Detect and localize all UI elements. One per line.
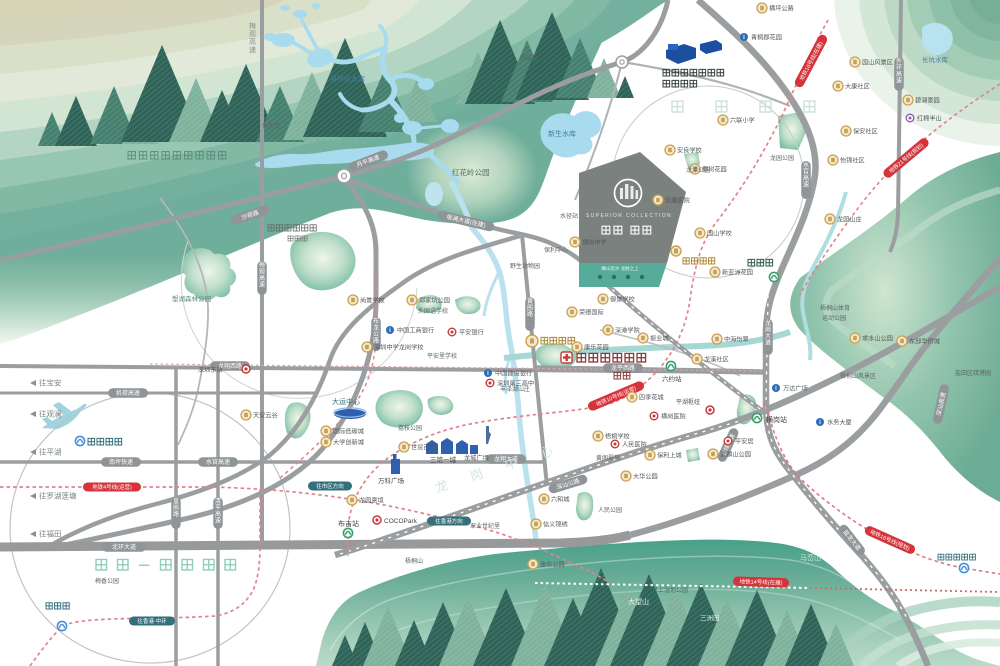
svg-text:黄: 黄 [527,297,533,305]
svg-text:道: 道 [765,339,771,347]
svg-text:往宝安: 往宝安 [39,378,62,388]
svg-text:外: 外 [896,57,902,65]
svg-text:安康医院: 安康医院 [665,197,690,205]
svg-text:大望山: 大望山 [628,597,649,606]
svg-text:恩上湿地公园: 恩上湿地公园 [652,586,688,594]
svg-text:往罗湖莲塘: 往罗湖莲塘 [39,491,77,501]
svg-text:保利中心: 保利中心 [544,246,568,254]
svg-text:路: 路 [527,310,533,318]
svg-text:六约站: 六约站 [662,374,682,383]
svg-text:龙: 龙 [373,324,379,332]
svg-text:求水山公园: 求水山公园 [862,335,893,343]
svg-text:尚景学校: 尚景学校 [360,297,385,305]
svg-text:金众公园: 金众公园 [540,561,565,569]
svg-text:荣德国际: 荣德国际 [579,309,604,317]
svg-text:中海怡翠: 中海怡翠 [724,336,749,344]
svg-text:观: 观 [259,269,265,276]
svg-text:高: 高 [803,174,809,182]
svg-text:碧湖豪园: 碧湖豪园 [915,97,940,105]
svg-text:布: 布 [373,317,379,325]
svg-text:中国建设银行: 中国建设银行 [495,370,532,378]
svg-text:盐田区疏港园: 盐田区疏港园 [955,369,991,377]
svg-text:三馆一城: 三馆一城 [430,455,457,464]
svg-text:往香港方向: 往香港方向 [435,517,463,525]
svg-text:公: 公 [373,331,379,338]
svg-text:黄阁翠苑: 黄阁翠苑 [596,454,620,462]
svg-text:龙: 龙 [765,319,771,327]
svg-text:清: 清 [215,497,221,505]
svg-text:岗: 岗 [173,505,179,512]
svg-text:御景学校: 御景学校 [610,296,635,304]
svg-text:平安居: 平安居 [735,438,754,446]
svg-text:梧桐山风景区: 梧桐山风景区 [840,372,876,380]
svg-text:梧桐山: 梧桐山 [405,557,423,565]
svg-text:阁: 阁 [527,304,533,312]
svg-text:万达广场: 万达广场 [783,385,808,393]
svg-text:机荷高速: 机荷高速 [116,389,140,397]
svg-text:新生水库: 新生水库 [548,129,576,138]
svg-text:梅: 梅 [259,261,265,269]
svg-text:龙溪社区: 龙溪社区 [704,356,729,364]
svg-text:皇: 皇 [173,497,179,505]
svg-text:天安云谷: 天安云谷 [253,412,278,420]
svg-text:万科广场: 万科广场 [378,476,405,485]
svg-text:高: 高 [259,274,265,282]
svg-text:六和城: 六和城 [551,496,570,504]
svg-text:外国语学校: 外国语学校 [418,307,448,315]
svg-text:深圳东站: 深圳东站 [198,366,223,374]
svg-text:路: 路 [373,337,379,345]
svg-text:横岗医院: 横岗医院 [661,413,686,421]
svg-text:塱湖森林公园: 塱湖森林公园 [172,294,211,303]
svg-text:荔枝公园: 荔枝公园 [398,424,422,432]
svg-text:往观澜: 往观澜 [39,409,62,419]
svg-text:恒大城: 恒大城 [262,122,280,130]
svg-text:人民公园: 人民公园 [598,507,622,514]
svg-text:潼林径水库: 潼林径水库 [330,74,365,83]
svg-text:横坪公路: 横坪公路 [769,5,795,13]
svg-text:梧桐山体育: 梧桐山体育 [820,304,850,312]
svg-text:深圳中学龙岗学校: 深圳中学龙岗学校 [374,344,424,352]
svg-text:龙平西路: 龙平西路 [611,364,635,372]
svg-text:世贸百货: 世贸百货 [411,444,436,452]
svg-text:龙城广场: 龙城广场 [464,454,489,462]
svg-text:丰泽湖山庄: 丰泽湖山庄 [500,385,530,393]
svg-text:官: 官 [803,168,809,176]
svg-text:保利上城: 保利上城 [657,452,682,460]
svg-text:SUPERIOR COLLECTION: SUPERIOR COLLECTION [586,213,672,219]
svg-text:梅香公园: 梅香公园 [95,577,119,585]
svg-text:北环大道: 北环大道 [112,543,136,551]
svg-text:平湖枢纽: 平湖枢纽 [676,398,700,406]
svg-text:人民医院: 人民医院 [622,441,647,449]
svg-text:深业世纪里: 深业世纪里 [470,522,500,530]
svg-text:郑家坑公园: 郑家坑公园 [419,297,450,305]
svg-text:四季花城: 四季花城 [639,394,664,402]
svg-text:安良学校: 安良学校 [677,147,702,155]
svg-text:保安社区: 保安社区 [853,128,878,136]
svg-text:水: 水 [803,161,809,169]
svg-text:中国工商银行: 中国工商银行 [397,327,434,335]
svg-text:高: 高 [215,510,221,518]
svg-text:大康社区: 大康社区 [845,83,870,91]
svg-text:青桐郡花园: 青桐郡花园 [751,34,782,42]
svg-text:水官高速: 水官高速 [206,458,230,466]
svg-text:往福田: 往福田 [39,529,62,539]
svg-text:信义锦绣: 信义锦绣 [543,521,569,529]
svg-text:紫麟山公园: 紫麟山公园 [720,451,751,459]
svg-text:高: 高 [896,70,902,78]
svg-text:水务大厦: 水务大厦 [827,419,852,427]
svg-text:马峦山: 马峦山 [800,553,821,562]
svg-text:红棉半山: 红棉半山 [917,115,942,123]
svg-text:布吉站: 布吉站 [338,519,359,528]
svg-text:速: 速 [803,182,809,189]
svg-text:速: 速 [215,518,221,525]
svg-text:国际低碳城: 国际低碳城 [333,428,364,436]
svg-text:横岗站: 横岗站 [766,415,787,424]
svg-text:三洲田: 三洲田 [700,614,720,622]
svg-text:瞰山近水 龙脉之上: 瞰山近水 龙脉之上 [601,265,639,272]
svg-text:南坪快速: 南坪快速 [109,458,133,466]
svg-text:水径站: 水径站 [560,212,578,220]
svg-text:园山学校: 园山学校 [707,230,732,238]
svg-text:深港学院: 深港学院 [615,327,640,335]
svg-text:龙潭公园: 龙潭公园 [686,166,710,174]
svg-text:岗: 岗 [765,327,771,334]
svg-text:速: 速 [896,78,902,85]
svg-text:东部华侨城: 东部华侨城 [909,338,940,346]
svg-text:路: 路 [173,510,179,518]
svg-text:龙园公园: 龙园公园 [770,154,794,162]
svg-text:振业城: 振业城 [650,335,669,343]
svg-text:平安银行: 平安银行 [459,329,484,337]
svg-text:红花岭公园: 红花岭公园 [452,167,490,177]
svg-text:横岗中学: 横岗中学 [582,239,607,247]
svg-text:龙园山庄: 龙园山庄 [837,216,862,224]
svg-text:六联小学: 六联小学 [730,117,755,125]
svg-text:运动公园: 运动公园 [822,314,846,322]
svg-text:龙园意境: 龙园意境 [359,497,384,505]
svg-text:新亚洲花园: 新亚洲花园 [722,269,753,277]
svg-text:梧桐学校: 梧桐学校 [605,433,630,441]
svg-text:大华公园: 大华公园 [633,473,658,481]
svg-text:大运中心: 大运中心 [332,397,360,406]
svg-text:野生动物园: 野生动物园 [510,262,540,270]
svg-text:怡锦社区: 怡锦社区 [840,157,865,165]
svg-text:长坑水库: 长坑水库 [922,55,949,64]
svg-text:平: 平 [215,505,221,512]
svg-text:往香港·中环: 往香港·中环 [137,617,167,625]
svg-text:梅观高速: 梅观高速 [249,21,257,54]
svg-text:平安里学校: 平安里学校 [427,352,457,360]
svg-text:大学创新城: 大学创新城 [333,439,364,447]
svg-text:COCOPark: COCOPark [384,518,418,525]
svg-text:往市区方向: 往市区方向 [316,482,344,490]
svg-text:康乐花园: 康乐花园 [584,344,609,352]
svg-text:环: 环 [896,65,902,72]
svg-text:往平湖: 往平湖 [39,447,62,457]
svg-text:速: 速 [259,282,265,289]
svg-text:大: 大 [765,332,771,340]
svg-text:地铁4号线(运营): 地铁4号线(运营) [92,483,132,491]
svg-text:园山风景区: 园山风景区 [862,59,893,67]
svg-text:杨美站: 杨美站 [520,54,538,62]
